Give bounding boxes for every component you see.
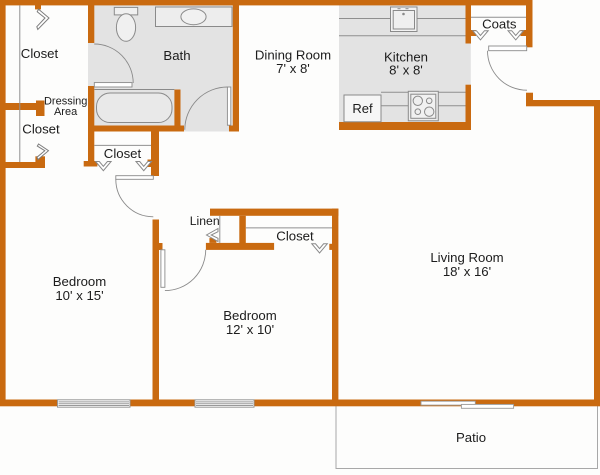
svg-text:10' x 15': 10' x 15' <box>55 288 103 303</box>
svg-text:Area: Area <box>54 106 78 118</box>
svg-text:Closet: Closet <box>21 46 59 61</box>
svg-text:Ref: Ref <box>352 101 373 116</box>
svg-text:Bedroom: Bedroom <box>223 308 277 323</box>
svg-text:Patio: Patio <box>456 430 486 445</box>
svg-text:8' x 8': 8' x 8' <box>389 63 423 78</box>
svg-text:Coats: Coats <box>482 17 517 32</box>
svg-text:Bedroom: Bedroom <box>53 274 107 289</box>
svg-text:18' x 16': 18' x 16' <box>443 264 491 279</box>
svg-text:7' x 8': 7' x 8' <box>276 61 310 76</box>
svg-text:12' x 10': 12' x 10' <box>226 322 274 337</box>
svg-text:Closet: Closet <box>22 122 60 137</box>
svg-text:Bath: Bath <box>163 48 190 63</box>
svg-text:Linen: Linen <box>190 214 220 228</box>
svg-text:Closet: Closet <box>276 229 314 244</box>
svg-text:Closet: Closet <box>104 146 142 161</box>
svg-text:Living Room: Living Room <box>430 250 503 265</box>
